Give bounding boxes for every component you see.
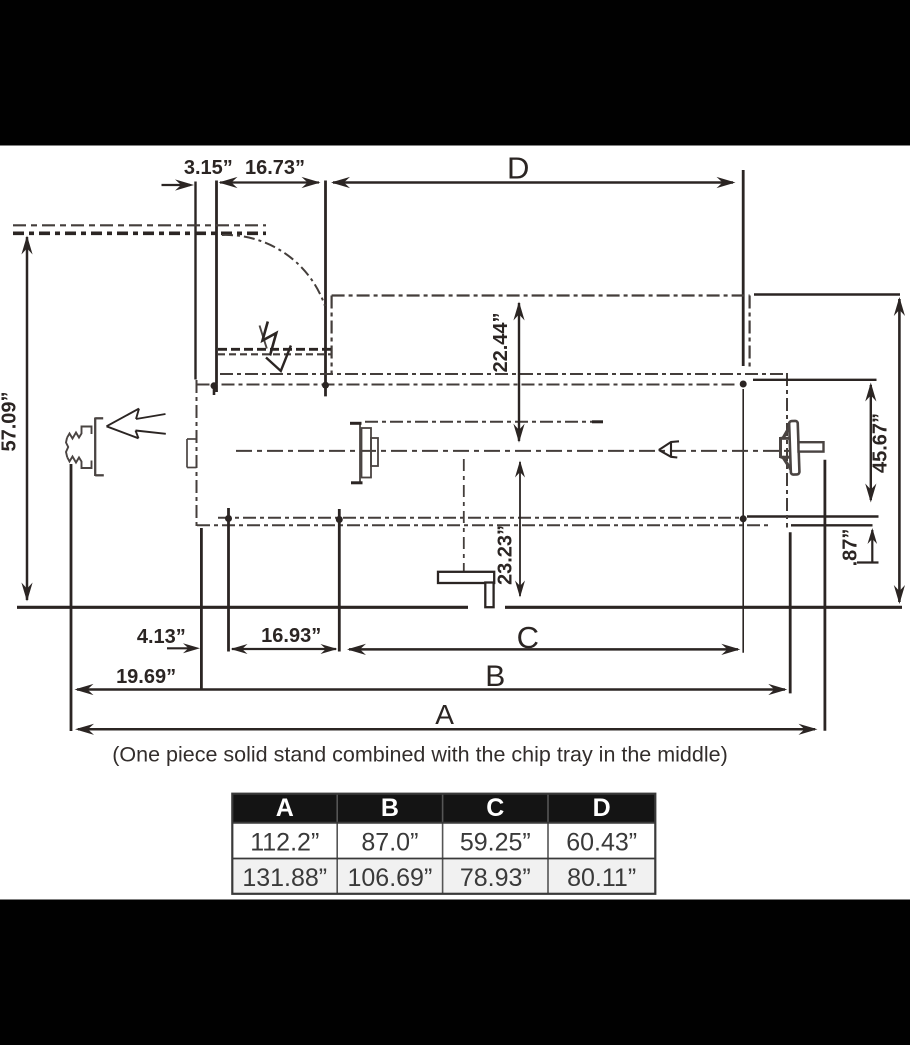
svg-text:112.2”: 112.2” (250, 829, 319, 857)
svg-text:87.0”: 87.0” (361, 829, 418, 857)
svg-text:45.67”: 45.67” (870, 413, 892, 473)
svg-text:22.44”: 22.44” (490, 312, 512, 372)
svg-text:A: A (435, 699, 454, 730)
svg-text:16.73”: 16.73” (245, 157, 305, 179)
svg-text:23.23”: 23.23” (495, 525, 517, 585)
svg-text:80.11”: 80.11” (567, 864, 636, 892)
svg-text:131.88”: 131.88” (242, 864, 327, 892)
svg-text:78.93”: 78.93” (460, 864, 531, 892)
svg-text:57.09”: 57.09” (0, 391, 21, 451)
svg-text:.87”: .87” (840, 529, 862, 567)
svg-text:C: C (486, 794, 504, 822)
svg-text:16.93”: 16.93” (261, 625, 321, 647)
svg-text:59.25”: 59.25” (460, 829, 531, 857)
svg-text:D: D (507, 150, 529, 185)
svg-text:3.15”: 3.15” (184, 157, 233, 179)
svg-text:A: A (276, 794, 294, 822)
svg-text:B: B (485, 660, 505, 693)
svg-text:D: D (593, 794, 611, 822)
svg-text:19.69”: 19.69” (116, 666, 176, 688)
svg-text:(One piece solid stand combine: (One piece solid stand combined with the… (112, 743, 727, 767)
svg-text:106.69”: 106.69” (348, 864, 433, 892)
svg-text:60.43”: 60.43” (566, 829, 637, 857)
svg-text:4.13”: 4.13” (137, 626, 186, 648)
svg-text:B: B (381, 794, 399, 822)
